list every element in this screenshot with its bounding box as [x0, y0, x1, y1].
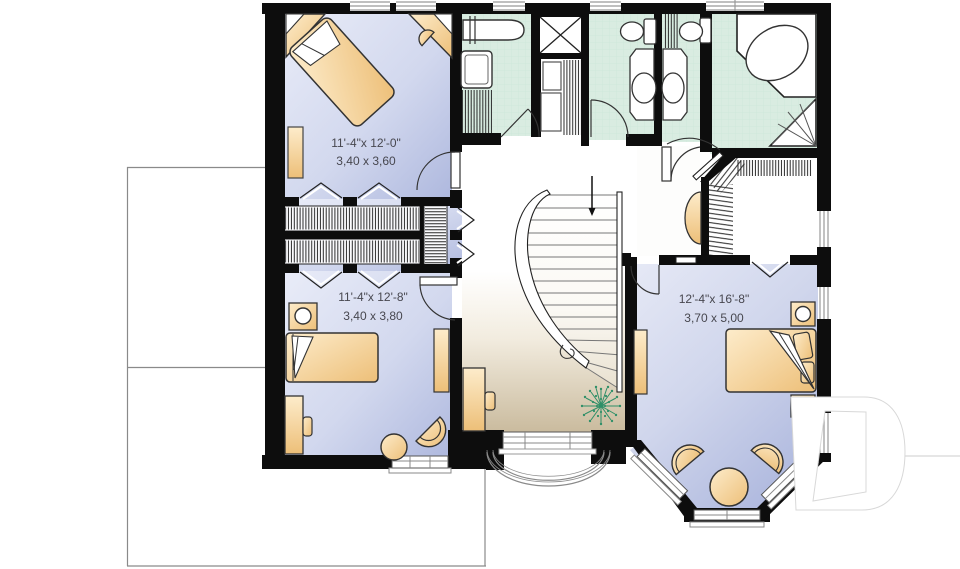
- svg-text:3,40 x 3,80: 3,40 x 3,80: [343, 309, 403, 323]
- svg-text:11'-4"x 12'-0": 11'-4"x 12'-0": [331, 136, 401, 150]
- svg-text:3,40 x 3,60: 3,40 x 3,60: [336, 154, 396, 168]
- svg-text:11'-4"x 12'-8": 11'-4"x 12'-8": [338, 290, 408, 304]
- svg-text:3,70 x 5,00: 3,70 x 5,00: [684, 311, 744, 325]
- svg-text:12'-4"x 16'-8": 12'-4"x 16'-8": [679, 292, 749, 306]
